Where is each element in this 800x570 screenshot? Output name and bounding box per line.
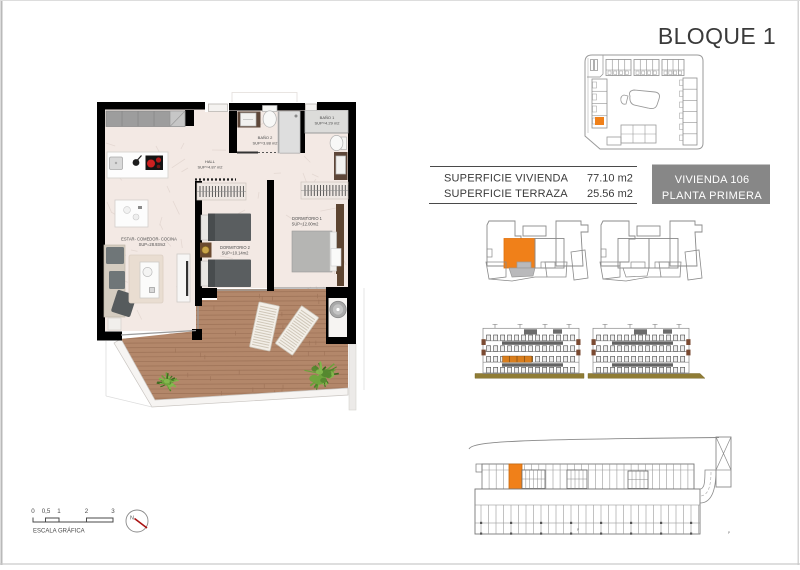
svg-text:HALL: HALL — [205, 159, 216, 164]
svg-text:25.56 m2: 25.56 m2 — [587, 188, 633, 200]
svg-text:SUPERFICIE VIVIENDA: SUPERFICIE VIVIENDA — [444, 173, 569, 185]
svg-text:VIVIENDA 106: VIVIENDA 106 — [675, 174, 750, 186]
svg-text:ESTAR- COMEDOR- COCINA: ESTAR- COMEDOR- COCINA — [121, 237, 177, 242]
svg-text:SUP=12.00m2: SUP=12.00m2 — [292, 221, 319, 226]
svg-text:77.10 m2: 77.10 m2 — [587, 173, 633, 185]
svg-text:BAÑO 2: BAÑO 2 — [258, 135, 273, 140]
svg-text:0,5: 0,5 — [42, 508, 51, 515]
svg-text:SUP=4.29 m2: SUP=4.29 m2 — [314, 120, 340, 125]
svg-text:1: 1 — [57, 508, 61, 515]
svg-text:2: 2 — [85, 508, 89, 515]
svg-text:SUPERFICIE TERRAZA: SUPERFICIE TERRAZA — [444, 188, 568, 200]
svg-text:ESCALA GRÁFICA: ESCALA GRÁFICA — [33, 528, 85, 535]
svg-text:DORMITORIO 2: DORMITORIO 2 — [220, 245, 251, 250]
svg-text:SUP=10.14m2: SUP=10.14m2 — [222, 250, 249, 255]
svg-text:SUP=28.93m2: SUP=28.93m2 — [139, 242, 166, 247]
svg-text:3: 3 — [111, 508, 115, 515]
svg-text:PLANTA PRIMERA: PLANTA PRIMERA — [662, 190, 762, 202]
svg-text:0: 0 — [31, 508, 35, 515]
svg-text:BAÑO 1: BAÑO 1 — [320, 115, 335, 120]
svg-text:SUP=3.88 m2: SUP=3.88 m2 — [252, 140, 278, 145]
svg-text:SUP=4.87 m2: SUP=4.87 m2 — [197, 164, 223, 169]
svg-text:N: N — [130, 516, 134, 522]
svg-text:DORMITORIO 1: DORMITORIO 1 — [292, 216, 323, 221]
svg-text:BLOQUE 1: BLOQUE 1 — [658, 23, 776, 49]
